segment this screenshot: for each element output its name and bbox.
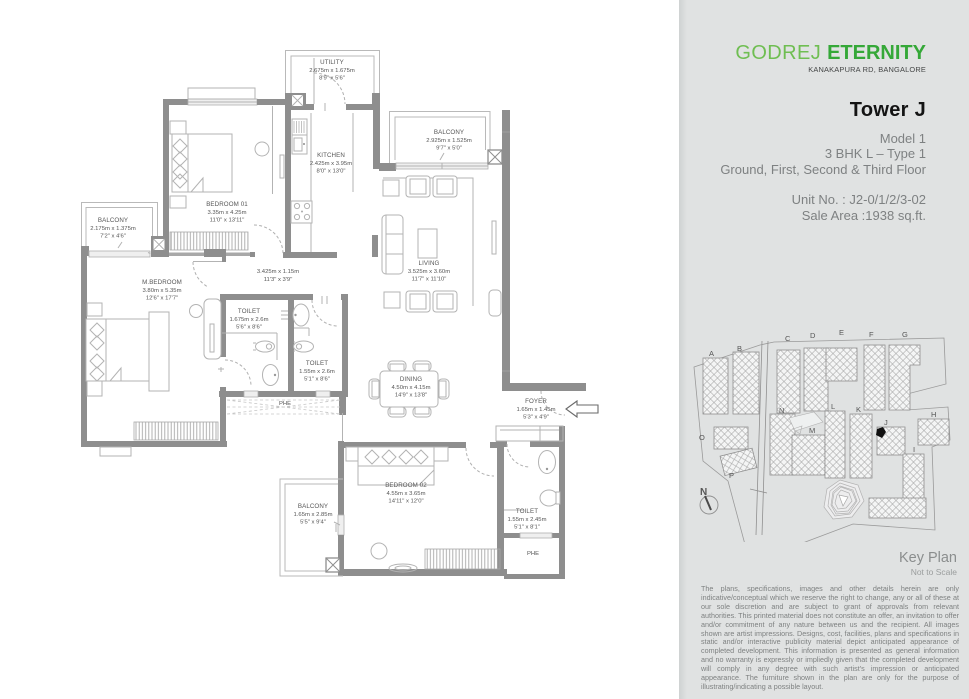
svg-text:A: A	[709, 349, 714, 358]
svg-text:3.425m x 1.15m: 3.425m x 1.15m	[257, 269, 299, 275]
svg-text:FOYER: FOYER	[525, 398, 547, 405]
svg-text:E: E	[839, 328, 844, 337]
svg-text:LIVING: LIVING	[419, 260, 440, 267]
svg-text:5'1" x 8'6": 5'1" x 8'6"	[304, 377, 330, 383]
svg-text:B: B	[737, 344, 742, 353]
svg-text:TOILET: TOILET	[238, 308, 260, 315]
svg-text:1.55m x 2.45m: 1.55m x 2.45m	[508, 517, 547, 523]
svg-text:P: P	[729, 471, 734, 480]
svg-text:G: G	[902, 330, 908, 339]
svg-text:5'3" x 4'9": 5'3" x 4'9"	[523, 415, 549, 421]
svg-text:M.BEDROOM: M.BEDROOM	[142, 279, 182, 286]
svg-text:D: D	[810, 331, 816, 340]
svg-text:TOILET: TOILET	[516, 508, 538, 515]
svg-text:11'0" x 13'11": 11'0" x 13'11"	[210, 218, 245, 224]
svg-text:BALCONY: BALCONY	[434, 129, 464, 136]
svg-text:F: F	[869, 330, 874, 339]
svg-text:DINING: DINING	[400, 376, 422, 383]
svg-text:9'7" x 5'0": 9'7" x 5'0"	[436, 146, 462, 152]
svg-text:BEDROOM 02: BEDROOM 02	[385, 482, 427, 489]
svg-text:1.65m x 2.85m: 1.65m x 2.85m	[294, 512, 333, 518]
svg-text:1.65m x 1.45m: 1.65m x 1.45m	[517, 407, 556, 413]
svg-text:BEDROOM 01: BEDROOM 01	[206, 201, 248, 208]
svg-text:N: N	[779, 406, 784, 415]
svg-text:2.175m x 1.375m: 2.175m x 1.375m	[90, 226, 136, 232]
svg-text:L: L	[831, 402, 835, 411]
svg-text:1.675m x 2.6m: 1.675m x 2.6m	[230, 317, 269, 323]
svg-text:5'1" x 8'1": 5'1" x 8'1"	[514, 525, 540, 531]
svg-text:BALCONY: BALCONY	[98, 217, 128, 224]
svg-text:5'6" x 8'6": 5'6" x 8'6"	[236, 325, 262, 331]
svg-text:I: I	[913, 445, 915, 454]
svg-text:11'3" x 3'9": 11'3" x 3'9"	[264, 277, 293, 283]
svg-text:N: N	[700, 487, 707, 498]
svg-text:4.55m x 3.65m: 4.55m x 3.65m	[387, 491, 426, 497]
svg-text:2.675m x 1.675m: 2.675m x 1.675m	[309, 68, 355, 74]
svg-text:3.35m x 4.25m: 3.35m x 4.25m	[208, 210, 247, 216]
svg-text:11'7" x 11'10": 11'7" x 11'10"	[412, 277, 447, 283]
svg-text:PHE: PHE	[279, 401, 291, 407]
svg-text:8'9" x 5'6": 8'9" x 5'6"	[319, 76, 345, 82]
svg-text:O: O	[699, 433, 705, 442]
svg-text:1.55m x 2.6m: 1.55m x 2.6m	[299, 369, 335, 375]
svg-text:7'2" x 4'6": 7'2" x 4'6"	[100, 234, 126, 240]
svg-text:KITCHEN: KITCHEN	[317, 152, 345, 159]
svg-text:5'5" x 9'4": 5'5" x 9'4"	[300, 520, 326, 526]
svg-text:14'11" x 12'0": 14'11" x 12'0"	[388, 499, 423, 505]
svg-text:BALCONY: BALCONY	[298, 503, 328, 510]
svg-text:2.425m x 3.95m: 2.425m x 3.95m	[310, 161, 352, 167]
svg-text:K: K	[856, 405, 861, 414]
svg-text:C: C	[785, 334, 791, 343]
svg-text:3.525m x 3.60m: 3.525m x 3.60m	[408, 269, 450, 275]
svg-text:PHE: PHE	[527, 551, 539, 557]
svg-text:H: H	[931, 410, 936, 419]
svg-text:J: J	[884, 418, 888, 427]
svg-text:8'0" x 13'0": 8'0" x 13'0"	[316, 169, 345, 175]
svg-text:UTILITY: UTILITY	[320, 59, 344, 66]
svg-text:14'9" x 13'8": 14'9" x 13'8"	[395, 393, 427, 399]
svg-text:12'6" x 17'7": 12'6" x 17'7"	[146, 296, 178, 302]
svg-text:4.50m x 4.15m: 4.50m x 4.15m	[392, 385, 431, 391]
svg-text:2.925m x 1.525m: 2.925m x 1.525m	[426, 138, 472, 144]
svg-text:M: M	[809, 426, 815, 435]
svg-text:TOILET: TOILET	[306, 360, 328, 367]
svg-text:3.80m x 5.35m: 3.80m x 5.35m	[143, 288, 182, 294]
